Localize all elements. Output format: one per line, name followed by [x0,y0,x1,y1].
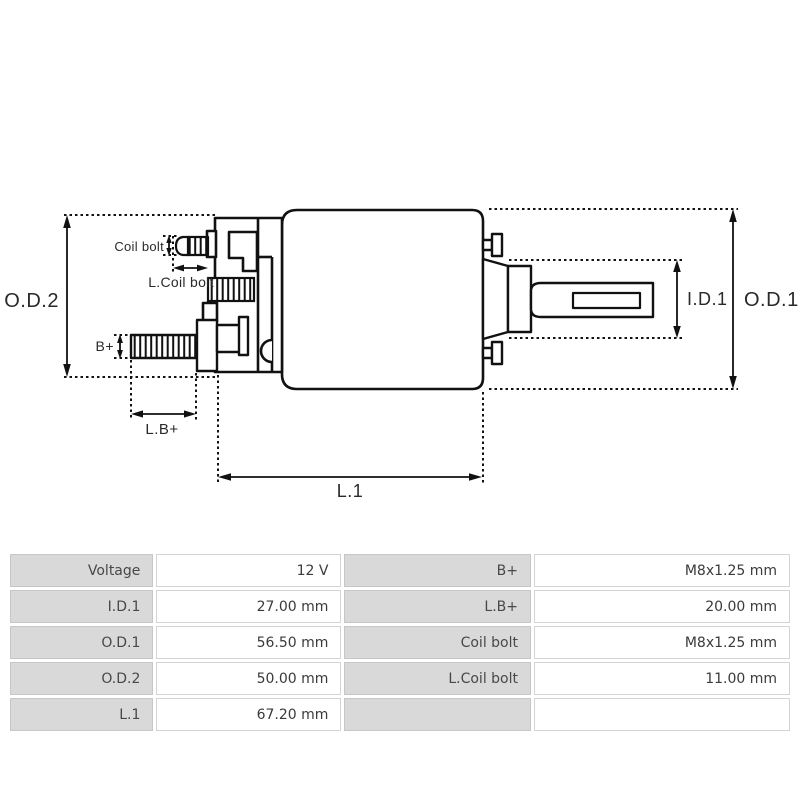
spec-label-cell: L.Coil bolt [344,662,531,695]
bottom-tab-stem [483,348,492,358]
l-coil-bolt-label: L.Coil bolt [148,274,214,290]
spec-label-cell [344,698,531,731]
spec-label-cell: I.D.1 [10,590,153,623]
b-plus-nut [197,320,217,371]
table-row: Voltage 12 V B+ M8x1.25 mm [10,554,790,587]
spec-value-cell: 67.20 mm [156,698,341,731]
table-row: I.D.1 27.00 mm L.B+ 20.00 mm [10,590,790,623]
spec-value-cell: 20.00 mm [534,590,790,623]
spec-label-cell: L.B+ [344,590,531,623]
spec-value-cell: M8x1.25 mm [534,554,790,587]
spec-table-section: Voltage 12 V B+ M8x1.25 mm I.D.1 27.00 m… [7,551,793,734]
solenoid-dimension-diagram: O.D.2 O.D.1 I.D.1 [0,0,800,545]
spec-label-cell: O.D.1 [10,626,153,659]
cap-notch [261,340,272,362]
spec-value-cell [534,698,790,731]
spec-label-cell: L.1 [10,698,153,731]
b-plus-threads [131,335,197,358]
spec-value-cell: 50.00 mm [156,662,341,695]
cylinder-body [282,210,483,389]
coil-bolt-threads [188,237,208,255]
bracket-step [203,303,217,321]
b-plus-washer [239,317,248,355]
plunger-assembly [483,234,653,364]
spec-table: Voltage 12 V B+ M8x1.25 mm I.D.1 27.00 m… [7,551,793,734]
table-row: O.D.2 50.00 mm L.Coil bolt 11.00 mm [10,662,790,695]
spec-value-cell: 27.00 mm [156,590,341,623]
id1-label: I.D.1 [687,289,728,309]
lb-plus-dimension [131,360,196,420]
coil-terminal-threads [208,278,254,301]
coil-bolt-dimension [163,235,178,272]
od1-label: O.D.1 [744,289,799,311]
lb-plus-label: L.B+ [145,421,178,438]
product-dimensions-page: O.D.2 O.D.1 I.D.1 [0,0,800,800]
spec-value-cell: M8x1.25 mm [534,626,790,659]
l1-dimension [218,375,483,483]
shaft-slot [573,293,640,308]
table-row: O.D.1 56.50 mm Coil bolt M8x1.25 mm [10,626,790,659]
b-plus-dimension [114,334,131,359]
coil-bolt-label: Coil bolt [114,239,164,254]
spec-label-cell: B+ [344,554,531,587]
table-row: L.1 67.20 mm [10,698,790,731]
coil-bolt-terminal [176,237,208,255]
spec-label-cell: Coil bolt [344,626,531,659]
l-coil-bolt-dimension [173,265,208,272]
od2-label: O.D.2 [4,290,59,312]
b-plus-label: B+ [95,338,114,354]
spec-label-cell: Voltage [10,554,153,587]
b-plus-bushing [217,325,241,352]
spec-label-cell: O.D.2 [10,662,153,695]
top-tab-cap [492,234,502,256]
spec-value-cell: 11.00 mm [534,662,790,695]
spec-value-cell: 12 V [156,554,341,587]
plunger-collar [508,266,531,332]
bottom-tab-cap [492,342,502,364]
top-tab-stem [483,240,492,250]
l1-label: L.1 [337,481,364,501]
spec-value-cell: 56.50 mm [156,626,341,659]
plunger-cone [483,259,508,339]
